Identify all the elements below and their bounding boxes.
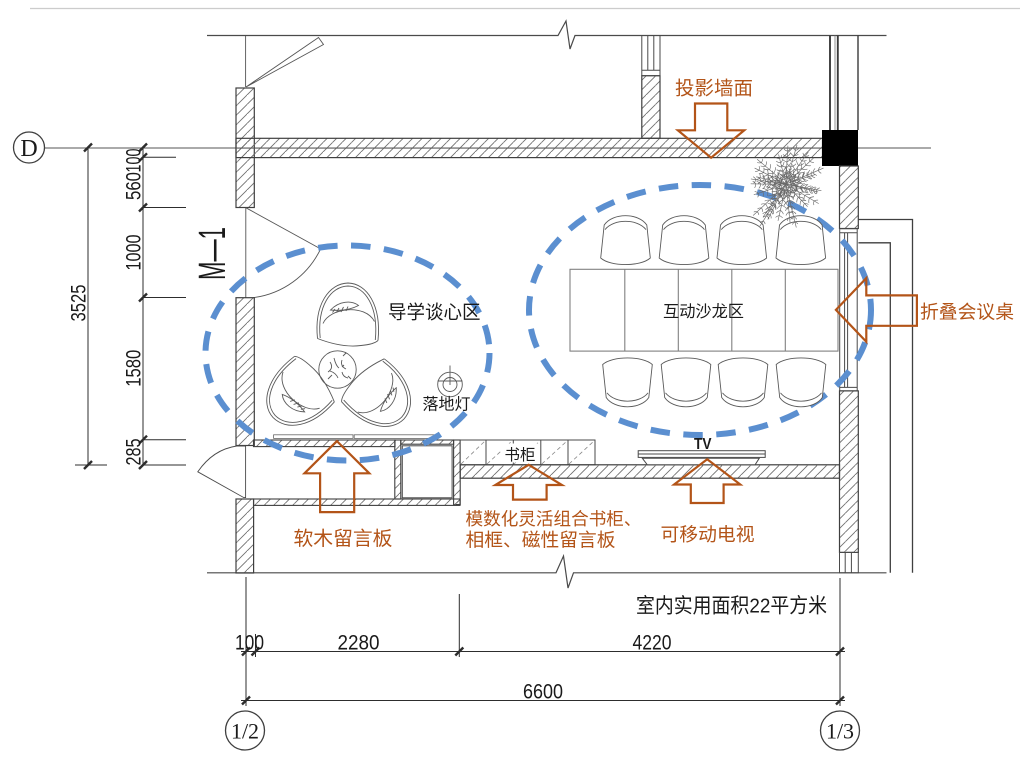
- svg-text:可移动电视: 可移动电视: [661, 524, 755, 545]
- svg-text:100: 100: [235, 632, 264, 655]
- svg-text:落地灯: 落地灯: [423, 396, 471, 414]
- svg-text:书柜: 书柜: [505, 446, 536, 464]
- svg-text:6600: 6600: [523, 681, 563, 704]
- svg-text:导学谈心区: 导学谈心区: [388, 302, 481, 323]
- svg-text:互动沙龙区: 互动沙龙区: [663, 302, 744, 321]
- svg-text:D: D: [20, 136, 37, 162]
- svg-text:1000: 1000: [123, 235, 146, 271]
- svg-text:室内实用面积22平方米: 室内实用面积22平方米: [636, 595, 827, 618]
- svg-text:2280: 2280: [338, 632, 380, 655]
- svg-text:1/3: 1/3: [826, 719, 854, 744]
- svg-text:1/2: 1/2: [231, 719, 259, 744]
- svg-text:3525: 3525: [68, 285, 91, 322]
- svg-text:100: 100: [123, 149, 146, 173]
- svg-text:1580: 1580: [123, 350, 146, 387]
- svg-text:相框、磁性留言板: 相框、磁性留言板: [466, 530, 616, 551]
- svg-text:软木留言板: 软木留言板: [294, 528, 393, 550]
- svg-text:285: 285: [123, 439, 146, 466]
- svg-text:折叠会议桌: 折叠会议桌: [920, 302, 1014, 323]
- svg-text:M—1: M—1: [191, 227, 234, 280]
- svg-text:TV: TV: [694, 436, 712, 453]
- svg-text:投影墙面: 投影墙面: [675, 78, 753, 100]
- svg-text:模数化灵活组合书柜、: 模数化灵活组合书柜、: [466, 509, 642, 529]
- svg-text:560: 560: [123, 172, 146, 200]
- svg-text:4220: 4220: [633, 632, 672, 655]
